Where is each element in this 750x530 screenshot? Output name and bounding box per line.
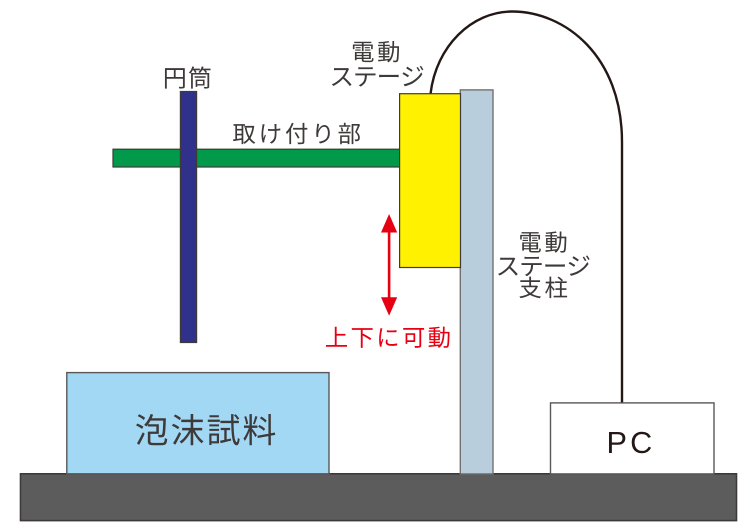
svg-text:PC: PC — [606, 425, 655, 460]
